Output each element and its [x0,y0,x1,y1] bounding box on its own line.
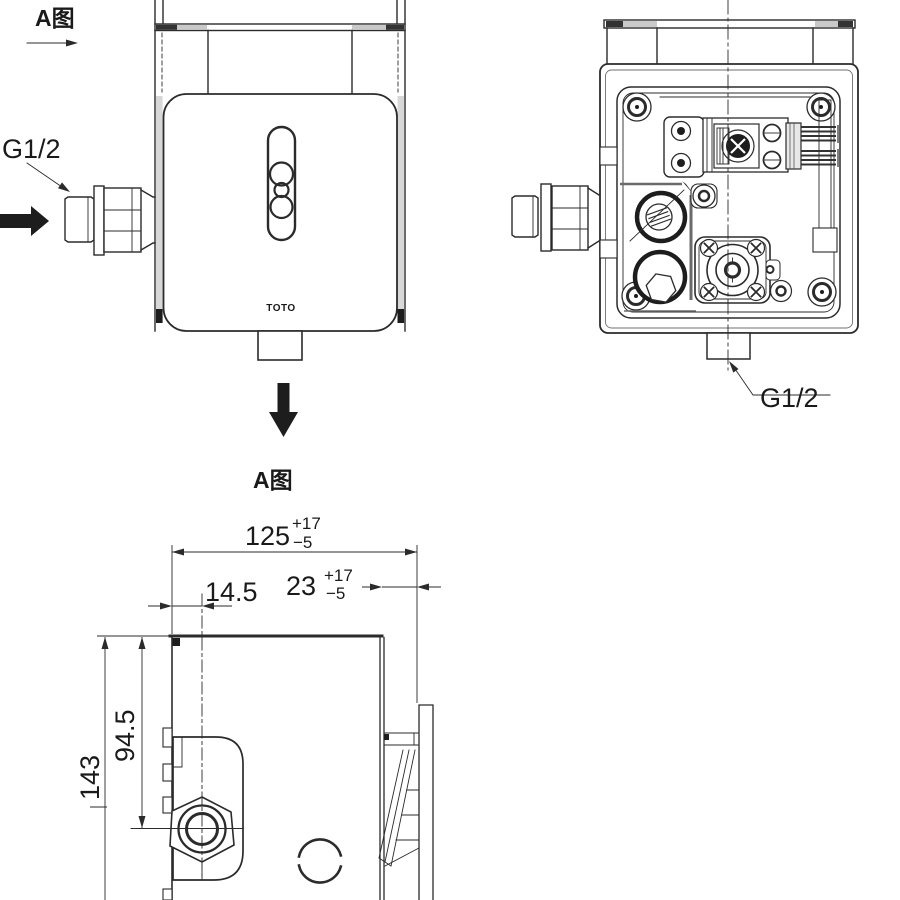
front-inlet-connector [65,186,155,255]
hex-plug-dial [635,252,685,302]
dim-overall-width-upper: +17 [292,514,321,533]
view-a-port-circle [299,839,341,882]
leader-arrow-icon [729,361,739,373]
dimension-overall-height: 143 [75,637,109,900]
view-a-bracket [379,733,419,866]
dimension-protrusion: 23 +17 −5 [286,566,441,603]
brand-logo: TOTO [266,303,295,314]
dim-protrusion-upper: +17 [324,566,353,585]
dim-overall-width-value: 125 [245,521,290,551]
front-outlet-stub [258,331,302,360]
solenoid-block [703,118,801,172]
rear-wall-plate [604,20,855,28]
front-hidden-edges [162,33,398,92]
view-a-marker: A图 [27,5,78,47]
view-a-marker-label: A图 [35,5,75,31]
inlet-thread-callout-front: G1/2 [2,134,70,192]
dimension-overall-width: 125 +17 −5 [97,514,417,703]
rear-sleeve-walls [607,28,853,64]
dim-protrusion-lower: −5 [326,584,345,603]
dim-overall-width-lower: −5 [293,533,312,552]
view-a-title: A图 [253,467,293,493]
view-direction-arrow-icon [66,40,78,47]
flow-in-arrow-icon [0,206,49,236]
inlet-thread-label: G1/2 [2,134,61,164]
front-wall-plate [155,24,405,31]
technical-drawing: TOTO A图 G1/2 [0,0,900,900]
outlet-thread-label: G1/2 [760,383,819,413]
front-sleeve-collar [208,31,352,95]
dimension-inlet-height: 94.5 [110,637,146,828]
front-view: TOTO [0,0,405,437]
flow-out-arrow-icon [269,383,298,437]
dim-protrusion-value: 23 [286,571,316,601]
rear-outlet-stub [707,333,750,359]
dim-overall-height-value: 143 [75,755,105,800]
outlet-thread-callout-rear: G1/2 [729,361,830,413]
dim-inlet-offset-value: 14.5 [205,577,258,607]
leader-arrow-icon [58,182,70,192]
sensor-window [268,127,295,240]
mounting-bracket [664,117,704,177]
side-view-a: A图 [75,467,441,900]
small-screw-tab [691,184,717,208]
front-sleeve-pipe [155,0,405,24]
dim-inlet-height-value: 94.5 [110,709,140,762]
dimension-inlet-offset: 14.5 [148,577,258,610]
rear-inlet-connector [512,184,599,251]
rear-view [512,0,858,370]
drawing-canvas: TOTO A图 G1/2 [0,0,900,900]
